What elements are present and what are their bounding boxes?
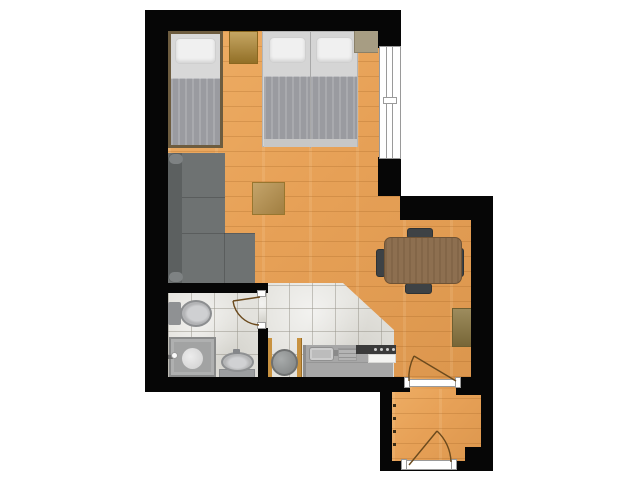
sofa-seam-3	[224, 233, 225, 283]
double-bed-foot-strip	[264, 139, 357, 147]
entrance-door-threshold	[406, 460, 452, 470]
corner-sofa	[168, 153, 255, 283]
shower-drain-circle	[182, 348, 203, 369]
outside-area	[400, 0, 640, 196]
sofa-backrest	[168, 153, 182, 283]
dining-table	[384, 237, 462, 284]
single-bed-pillow	[175, 38, 216, 64]
window	[379, 46, 401, 159]
coffee-table	[252, 182, 285, 215]
nightstand	[229, 31, 258, 64]
bathroom-door-jamb-top	[257, 290, 266, 297]
double-bed-blanket-left	[264, 76, 310, 139]
double-bed-pillow-right	[316, 37, 353, 63]
floor-plan	[0, 0, 640, 480]
double-bed	[262, 31, 358, 147]
kitchen-sink	[309, 347, 334, 361]
appliance-niche-panel-right	[297, 338, 302, 378]
sofa-chaise	[225, 233, 255, 283]
sofa-armrest-top	[169, 154, 183, 164]
wall-bottom	[145, 377, 410, 392]
counter-drawers	[338, 348, 357, 361]
wall-dining-right	[471, 220, 493, 378]
wall-hall-left	[380, 389, 392, 471]
window-crossbar	[383, 97, 397, 104]
single-bed	[168, 31, 223, 148]
coat-hook-4	[393, 443, 396, 446]
washbasin	[221, 352, 254, 372]
counter-worktop-white	[368, 354, 396, 363]
wall-top	[145, 10, 401, 31]
burner-icon-4	[392, 348, 395, 351]
burner-icon-1	[374, 348, 377, 351]
wardrobe-shelf	[354, 31, 378, 53]
wall-dining-top	[400, 196, 493, 220]
wall-below-window	[378, 157, 401, 196]
wall-bathroom-top	[145, 283, 268, 293]
toilet-bowl	[180, 300, 212, 327]
sofa-seam-2	[182, 233, 255, 234]
kitchen-counter	[303, 345, 393, 378]
coat-hook-1	[393, 404, 396, 407]
burner-icon-3	[386, 348, 389, 351]
shower-head-icon	[171, 352, 178, 359]
cooktop	[356, 345, 396, 354]
bathroom-door-jamb-bottom	[257, 322, 266, 329]
coat-hook-2	[393, 417, 396, 420]
hall-door-threshold	[409, 379, 456, 387]
coat-hook-3	[393, 430, 396, 433]
wall-hall-step	[465, 447, 493, 461]
wall-left	[145, 10, 168, 392]
double-bed-pillow-left	[269, 37, 306, 63]
dining-chair-bottom	[405, 283, 432, 294]
double-bed-blanket-right	[311, 76, 357, 139]
washbasin-faucet-icon	[233, 349, 240, 354]
washing-machine	[271, 349, 298, 376]
wall-bathroom-separator	[258, 328, 268, 378]
sofa-armrest-bottom	[169, 272, 183, 282]
sideboard	[452, 308, 472, 347]
sofa-seam-1	[182, 197, 225, 198]
single-bed-blanket	[171, 78, 220, 145]
burner-icon-2	[380, 348, 383, 351]
